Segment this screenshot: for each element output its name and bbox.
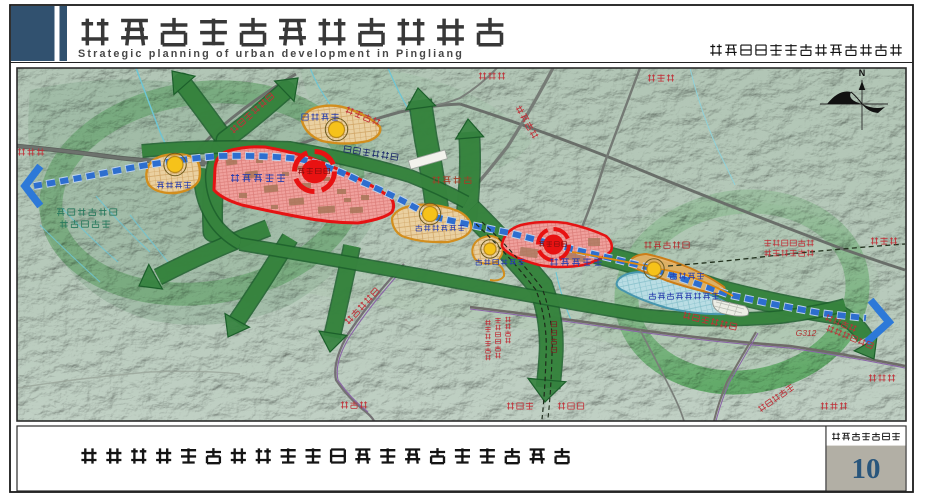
svg-text:10: 10 [852,453,881,485]
svg-text:G312: G312 [796,328,817,338]
svg-text:N: N [859,68,866,78]
svg-text:Strategic planning of urban de: Strategic planning of urban development … [78,48,464,60]
